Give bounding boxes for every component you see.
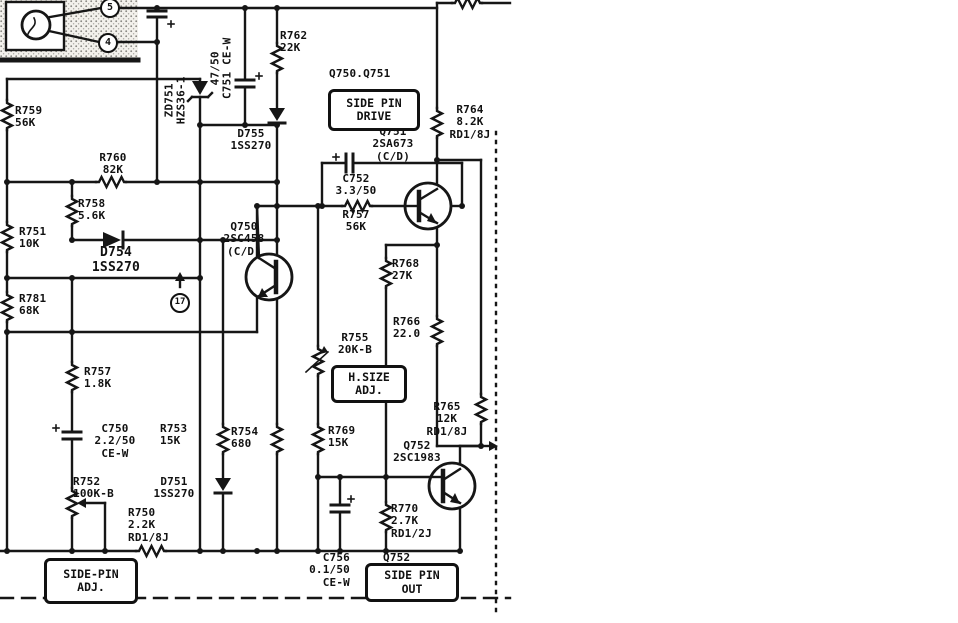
resistor-r768-symbol (381, 258, 391, 288)
label-r768: R768 27K (392, 258, 419, 283)
diode-d755-symbol (269, 108, 285, 121)
resistor-top-right-symbol (452, 0, 482, 8)
resistor-r770-symbol (381, 502, 391, 532)
resistor-r758-symbol (67, 196, 77, 226)
label-d755: D755 1SS270 (226, 128, 276, 153)
label-r765: R765 12K RD1/8J (419, 401, 475, 438)
label-q752: Q752 2SC1983 (377, 440, 457, 465)
label-r750: R750 2.2K RD1/8J (128, 507, 169, 544)
resistor-r750-symbol (136, 546, 166, 556)
label-c750: C750 2.2/50 CE-W (86, 423, 144, 460)
label-r769: R769 15K (328, 425, 355, 450)
label-c756: C756 0.1/50 CE-W (294, 552, 350, 589)
label-r762: R762 22K (280, 30, 307, 55)
diode-d751-symbol (215, 478, 231, 491)
resistor-r781-symbol (2, 292, 12, 322)
label-r760: R760 82K (90, 152, 136, 177)
hsize-column (306, 206, 328, 551)
resistor-r764-symbol (432, 108, 442, 138)
resistor-r751-symbol (2, 222, 12, 252)
label-q751: Q751 2SA673 (C/D) (354, 126, 432, 163)
label-c752: C752 3.3/50 (328, 173, 384, 198)
label-q750-q751-title: Q750.Q751 (329, 68, 390, 80)
label-r755: R755 20K-B (328, 332, 382, 357)
side-pin-adj-box: SIDE-PIN ADJ. (44, 558, 138, 604)
label-r751: R751 10K (19, 226, 46, 251)
label-q750: Q750 2SC458 (C/D) (216, 221, 272, 258)
connector-pin-4: 4 (98, 33, 118, 53)
top-rails (117, 0, 510, 42)
label-r752: R752 100K-B (73, 476, 114, 501)
resistor-r760-symbol (96, 177, 126, 187)
label-r757-left: R757 1.8K (84, 366, 111, 391)
side-pin-drive-box: SIDE PIN DRIVE (328, 89, 420, 131)
tp17-arrow (175, 272, 185, 281)
label-r753: R753 15K (160, 423, 187, 448)
capacitor-c751 (236, 8, 262, 125)
label-r766: R766 22.0 (393, 316, 420, 341)
label-zd751: ZD751 HZS36-1 (164, 63, 189, 137)
r760-row (7, 177, 277, 187)
coil-symbol (22, 11, 50, 39)
label-r770: R770 2.7K RD1/2J (391, 503, 432, 540)
r753-d751-column (215, 240, 231, 551)
resistor-r765-symbol (476, 394, 486, 424)
label-r764: R764 8.2K RD1/8J (444, 104, 496, 141)
test-point-17: 17 (170, 293, 190, 313)
resistor-r753-symbol (218, 424, 228, 454)
resistor-r766-symbol (432, 316, 442, 346)
resistor-r754-symbol (272, 424, 282, 454)
transistor-q750-symbol (246, 254, 292, 300)
label-r754: R754 680 (231, 426, 258, 451)
resistor-r757-left-symbol (67, 362, 77, 392)
h-size-adj-box: H.SIZE ADJ. (331, 365, 407, 403)
resistor-r759-symbol (2, 100, 12, 130)
schematic-page: R759 56K R760 82K R758 5.6K R751 10K D75… (0, 0, 958, 623)
label-d751: D751 1SS270 (146, 476, 202, 501)
label-d754: D754 1SS270 (84, 246, 148, 275)
label-r758: R758 5.6K (78, 198, 105, 223)
label-c751: 47/50 C751 CE-W (210, 28, 235, 108)
left-adj-column (53, 278, 105, 551)
label-r757-mid: R757 56K (333, 209, 379, 234)
label-r759: R759 56K (15, 105, 42, 130)
resistor-r769-symbol (313, 424, 323, 454)
side-pin-out-box: SIDE PIN OUT (365, 563, 459, 602)
label-r781: R781 68K (19, 293, 46, 318)
right-bus (476, 160, 486, 446)
